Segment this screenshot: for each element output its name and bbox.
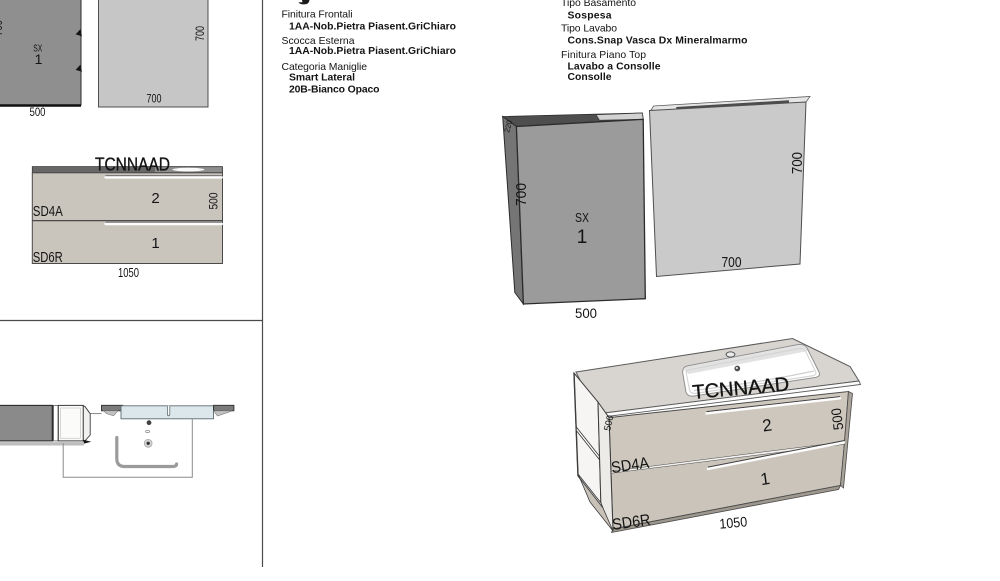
svg-text:SD4A: SD4A: [33, 204, 63, 220]
svg-text:Finitura Piano Top: Finitura Piano Top: [561, 50, 646, 61]
svg-text:Tipo Basamento: Tipo Basamento: [561, 0, 636, 9]
svg-text:Consolle: Consolle: [568, 72, 612, 83]
svg-text:500: 500: [207, 192, 221, 209]
svg-text:2: 2: [151, 190, 159, 207]
svg-text:Cons.Snap Vasca Dx Mineralmarm: Cons.Snap Vasca Dx Mineralmarmo: [568, 36, 748, 47]
svg-text:Tipo Lavabo: Tipo Lavabo: [561, 24, 617, 35]
svg-text:1AA-Nob.Pietra Piasent.GriChia: 1AA-Nob.Pietra Piasent.GriChiaro: [289, 46, 456, 57]
svg-text:700: 700: [722, 254, 742, 271]
svg-text:SD6R: SD6R: [33, 250, 63, 266]
svg-text:700: 700: [513, 183, 530, 206]
svg-text:Finitura Frontali: Finitura Frontali: [282, 10, 353, 21]
svg-text:Categoria Maniglie: Categoria Maniglie: [282, 62, 368, 73]
svg-text:Sospesa: Sospesa: [568, 10, 612, 21]
svg-text:1: 1: [35, 51, 43, 67]
svg-text:1050: 1050: [118, 266, 139, 280]
svg-text:500: 500: [828, 407, 847, 431]
svg-text:500: 500: [575, 305, 597, 321]
svg-text:20B-Bianco Opaco: 20B-Bianco Opaco: [289, 85, 380, 96]
svg-text:1050: 1050: [719, 513, 748, 531]
svg-text:700: 700: [790, 152, 806, 174]
svg-text:1AA-Nob.Pietra Piasent.GriChia: 1AA-Nob.Pietra Piasent.GriChiaro: [289, 22, 456, 33]
svg-text:1: 1: [577, 227, 588, 248]
svg-text:1: 1: [151, 235, 159, 252]
svg-text:Lavabo a Consolle: Lavabo a Consolle: [568, 62, 661, 73]
svg-text:500: 500: [30, 105, 46, 119]
svg-text:TCNNAAD: TCNNAAD: [95, 154, 170, 175]
svg-text:700: 700: [147, 92, 162, 106]
svg-text:SX: SX: [575, 210, 589, 225]
svg-text:700: 700: [195, 26, 207, 41]
svg-text:700: 700: [0, 20, 5, 36]
svg-text:Smart Lateral: Smart Lateral: [289, 73, 355, 84]
